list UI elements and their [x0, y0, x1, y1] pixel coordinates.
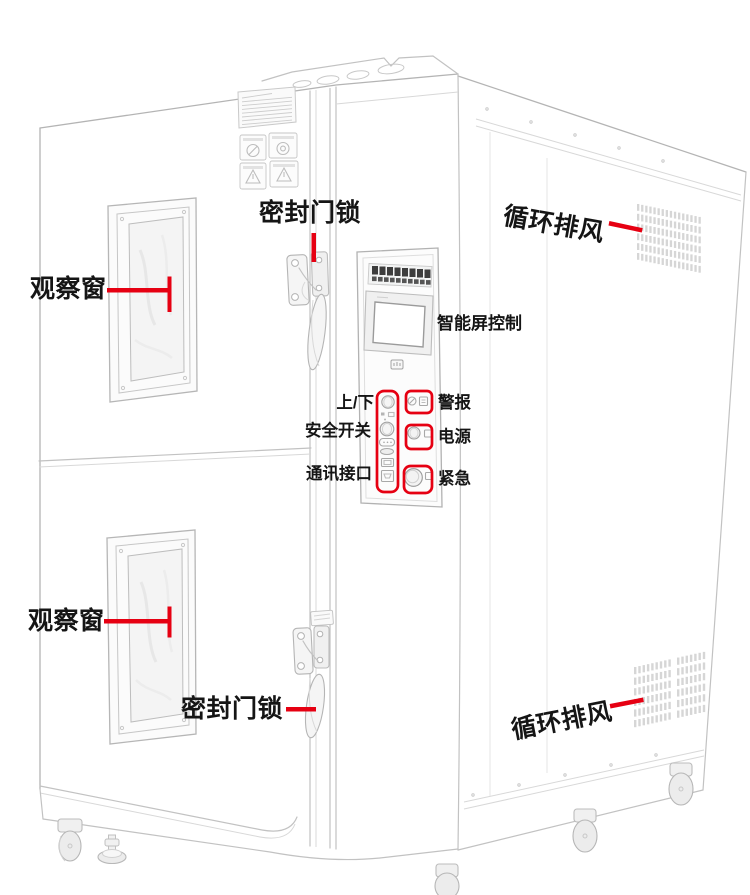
label-door-lock-bottom: 密封门锁 [181, 695, 283, 724]
diagram-canvas: 观察窗 密封门锁 循环排风 智能屏控制 上/下 安全开关 通讯接口 警报 电源 … [0, 0, 750, 895]
base-and-kickplate [40, 786, 458, 860]
label-emergency: 紧急 [438, 470, 471, 489]
label-smart-screen: 智能屏控制 [437, 314, 522, 334]
label-observation-window-bottom: 观察窗 [28, 607, 105, 636]
label-observation-window-top: 观察窗 [30, 275, 107, 304]
leveling-foot [98, 835, 126, 864]
label-comm-interface: 通讯接口 [298, 465, 372, 484]
leader-window-bottom [104, 619, 168, 624]
label-door-lock-top: 密封门锁 [259, 199, 361, 228]
caster [58, 819, 82, 832]
observation-window-top [108, 198, 197, 402]
label-alarm: 警报 [438, 394, 471, 413]
leader-door-lock-top [312, 233, 317, 262]
door-latch-bottom [293, 610, 334, 739]
latch-handle [302, 673, 328, 739]
vent-grille-bottom [634, 652, 705, 727]
leader-window-bottom-tick [168, 607, 172, 638]
door-latch-top [287, 252, 330, 371]
vent-grille-top [637, 204, 701, 273]
side-panel [458, 76, 746, 850]
machine-line-art [0, 0, 750, 895]
label-power: 电源 [438, 428, 471, 447]
touch-screen [373, 302, 425, 347]
leader-door-lock-bottom [286, 707, 316, 712]
warning-stickers [240, 133, 298, 189]
leader-window-top-tick [168, 277, 172, 313]
label-up-down: 上/下 [312, 394, 374, 413]
latch-handle [304, 293, 329, 370]
leader-window-top [107, 288, 168, 293]
casters-feet [58, 763, 693, 895]
label-safety-switch: 安全开关 [297, 422, 371, 441]
usb-icon [391, 360, 403, 369]
